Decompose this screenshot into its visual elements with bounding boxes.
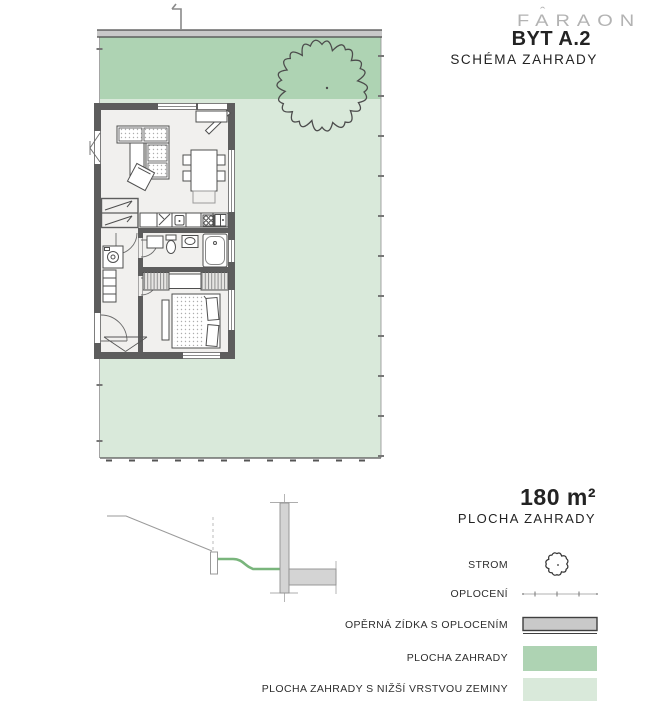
legend-label-plocha-zahrady: PLOCHA ZAHRADY (407, 652, 508, 664)
pillow (206, 298, 219, 321)
logo-caret-decoration: ˆ (540, 5, 545, 20)
page-title: BYT A.2 (512, 28, 591, 51)
sink-icon (175, 216, 184, 226)
garden-lower-soil-swatch (523, 678, 597, 701)
fence-post (211, 552, 218, 574)
retaining-wall-footing (289, 569, 336, 585)
toilet (166, 235, 176, 254)
garden-door-opening (198, 104, 227, 109)
tree-legend-icon (546, 553, 568, 575)
bathtub (203, 234, 227, 267)
bed (172, 294, 220, 348)
garden-full-soil-band (100, 37, 381, 99)
north-arrow-icon (172, 4, 181, 30)
bath-cabinet (147, 236, 163, 248)
chair (183, 155, 191, 165)
legend-label-operna-zidka: OPĚRNÁ ZÍDKA S OPLOCENÍM (345, 619, 508, 631)
washing-machine (103, 246, 123, 268)
garden-area-label: PLOCHA ZAHRADY (458, 511, 596, 526)
chair (183, 171, 191, 181)
chair (217, 155, 225, 165)
plan-drawing (0, 0, 659, 719)
pillow (206, 325, 219, 347)
dresser (169, 274, 201, 289)
retaining-wall-top (97, 30, 382, 37)
section-diagram (107, 494, 336, 602)
wardrobe (143, 273, 228, 291)
legend-label-plocha-nizsi-vrstva: PLOCHA ZAHRADY S NIŽŠÍ VRSTVOU ZEMINY (262, 683, 508, 695)
chair (217, 171, 225, 181)
legend-icons (522, 553, 598, 701)
legend-label-oploceni: OPLOCENÍ (451, 588, 508, 600)
bedroom-bench (162, 300, 169, 340)
retaining-wall-icon (523, 618, 597, 634)
retaining-wall-section (280, 503, 289, 593)
hall-shelves (103, 270, 116, 302)
fence-line-icon (522, 592, 598, 597)
sideboard (196, 111, 227, 122)
bathroom-sink (182, 236, 198, 248)
entrance-opening (95, 313, 100, 343)
garden-area-swatch (523, 646, 597, 671)
terrain-line (107, 516, 212, 551)
page-subtitle: SCHÉMA ZAHRADY (450, 52, 598, 67)
closet (102, 199, 139, 228)
legend-label-strom: STROM (468, 559, 508, 571)
garden-surface-line (218, 559, 283, 569)
kitchen-counter (140, 213, 228, 227)
floor-plan (90, 103, 235, 359)
garden-schema-page: { "header": { "logo": "FARAON", "title":… (0, 0, 659, 719)
garden-area-value: 180 m² (520, 484, 596, 511)
